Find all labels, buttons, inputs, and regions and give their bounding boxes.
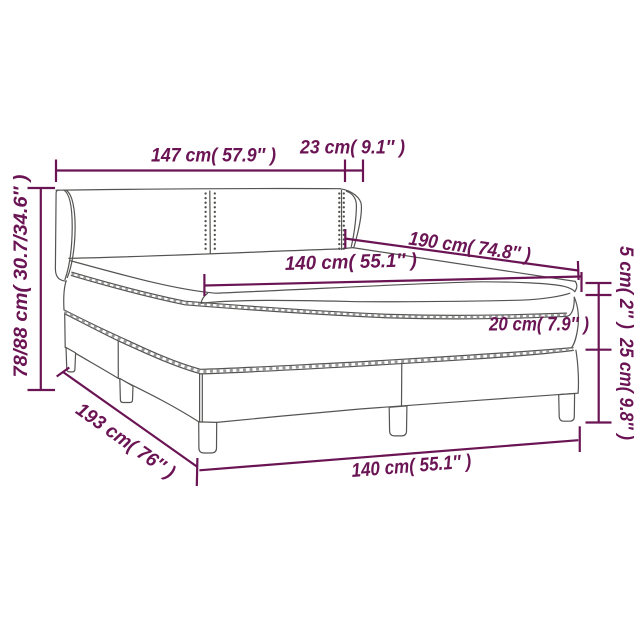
svg-text:193 cm( 76″ ): 193 cm( 76″ )	[72, 399, 179, 484]
svg-text:20 cm( 7.9″ ): 20 cm( 7.9″ )	[488, 314, 589, 336]
svg-text:25 cm( 9.8″ ): 25 cm( 9.8″ )	[615, 337, 637, 440]
svg-text:140 cm( 55.1″ ): 140 cm( 55.1″ )	[351, 450, 472, 482]
svg-text:147 cm( 57.9″ ): 147 cm( 57.9″ )	[151, 144, 276, 166]
svg-text:23 cm( 9.1″ ): 23 cm( 9.1″ )	[299, 137, 405, 159]
svg-text:140 cm( 55.1″ ): 140 cm( 55.1″ )	[285, 249, 418, 275]
svg-text:190 cm( 74.8″ ): 190 cm( 74.8″ )	[407, 228, 532, 267]
svg-text:5 cm( 2″ ): 5 cm( 2″ )	[615, 246, 637, 329]
svg-text:78/88 cm( 30.7/34.6″ ): 78/88 cm( 30.7/34.6″ )	[10, 175, 32, 378]
